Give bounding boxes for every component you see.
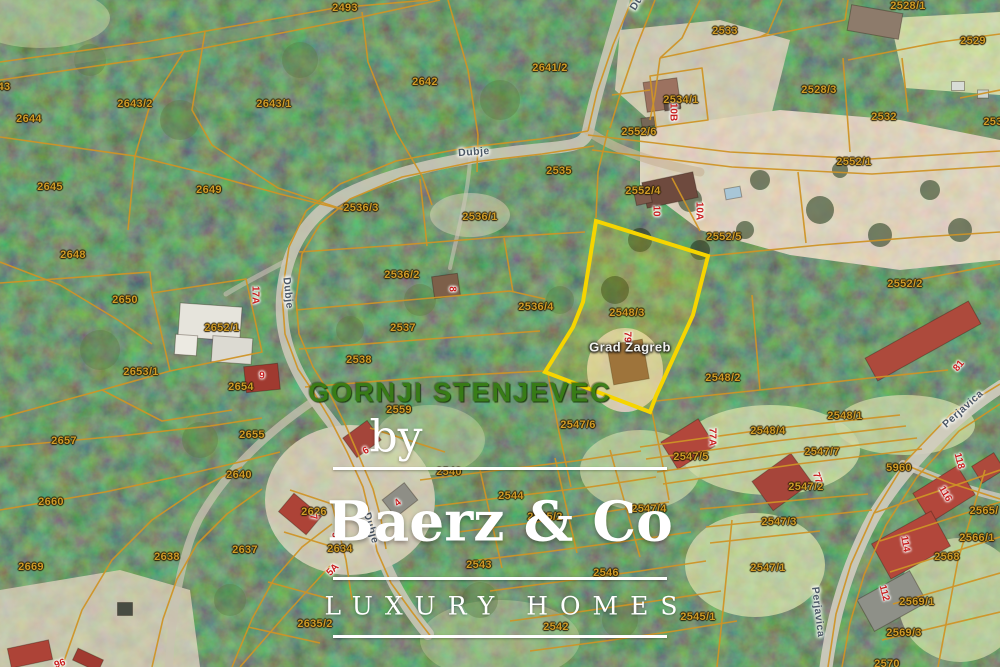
parcel-label: 2626 <box>301 506 327 518</box>
parcel-label: 2650 <box>112 294 138 306</box>
house-number-label: 118 <box>952 452 967 470</box>
parcel-label: 2545/2 <box>527 511 562 523</box>
parcel-label: 2637 <box>232 544 258 556</box>
parcel-label: 2537 <box>390 322 416 334</box>
parcel-label: 2654 <box>228 381 254 393</box>
parcel-label: 2643/2 <box>117 98 152 110</box>
house-number-label: 7 <box>307 513 319 520</box>
street-name-label: Dubje <box>628 0 655 13</box>
parcel-label: 2528/1 <box>890 0 925 12</box>
parcel-label: 2547/4 <box>631 503 666 515</box>
parcel-label: 2547/5 <box>673 451 708 463</box>
parcel-label: 2640 <box>226 469 252 481</box>
house-number-label: 10A <box>694 202 705 220</box>
parcel-label: 2552/2 <box>887 278 922 290</box>
parcel-label: 253 <box>983 116 1000 128</box>
parcel-label: 2660 <box>38 496 64 508</box>
house-number-label: 5 <box>329 532 340 539</box>
parcel-label: 2540 <box>436 466 462 478</box>
parcel-label: 2547/6 <box>560 419 595 431</box>
parcel-label: 2545/1 <box>680 611 715 623</box>
parcel-label: 2543 <box>466 559 492 571</box>
parcel-label: 2644 <box>16 113 42 125</box>
house-number-label: 114 <box>898 535 912 553</box>
house-number-label: 6 <box>361 445 371 457</box>
house-number-label: 10 <box>651 205 662 216</box>
parcel-label: 2566/1 <box>959 532 994 544</box>
parcel-label: 2493 <box>332 2 358 14</box>
parcel-label: 2649 <box>196 184 222 196</box>
house-number-label: 77A <box>707 428 718 446</box>
parcel-label: 2643/1 <box>256 98 291 110</box>
parcel-label: 2568 <box>934 551 960 563</box>
parcel-label: 2657 <box>51 435 77 447</box>
house-number-label: 77 <box>810 471 824 485</box>
parcel-label: 2652/1 <box>204 322 239 334</box>
parcel-label: 2548/1 <box>827 410 862 422</box>
house-number-label: 4 <box>392 497 403 509</box>
house-number-label: 79 <box>622 331 633 342</box>
parcel-label: 2548/4 <box>750 425 785 437</box>
parcel-label: 2552/6 <box>621 126 656 138</box>
parcel-label: 2569/3 <box>886 627 921 639</box>
parcel-label: 43 <box>0 81 10 93</box>
parcel-label: 2536/4 <box>518 301 553 313</box>
parcel-label: 2570 <box>874 658 900 667</box>
street-name-label: Dubje <box>458 145 490 159</box>
parcel-label: 2547/2 <box>788 481 823 493</box>
parcel-label: 2544 <box>498 490 524 502</box>
parcel-label: 2565/ <box>969 505 998 517</box>
parcel-label: 2536/3 <box>343 202 378 214</box>
parcel-label: 2569/1 <box>899 596 934 608</box>
parcel-label: 2641/2 <box>532 62 567 74</box>
parcel-label: 2548/3 <box>609 307 644 319</box>
parcel-label: 2542 <box>543 621 569 633</box>
parcel-label: 2638 <box>154 551 180 563</box>
parcel-label: 2533 <box>712 25 738 37</box>
parcel-label: 2635/2 <box>297 618 332 630</box>
parcel-label: 2552/4 <box>625 185 660 197</box>
parcel-label: 2655 <box>239 429 265 441</box>
parcel-label: 2547/3 <box>761 516 796 528</box>
house-number-label: 112 <box>877 584 892 602</box>
parcel-label: 2538 <box>346 354 372 366</box>
parcel-label: 2552/5 <box>706 231 741 243</box>
map-labels-layer: 2493432643/22643/1264426422641/225332528… <box>0 0 1000 667</box>
parcel-label: 2634 <box>327 543 353 555</box>
house-number-label: 17A <box>250 286 261 304</box>
map-canvas[interactable]: 2493432643/22643/1264426422641/225332528… <box>0 0 1000 667</box>
street-name-label: Dubje <box>361 511 381 545</box>
parcel-label: 2669 <box>18 561 44 573</box>
parcel-label: 2552/1 <box>836 156 871 168</box>
parcel-label: 2642 <box>412 76 438 88</box>
parcel-label: 2547/1 <box>750 562 785 574</box>
parcel-label: 2548/2 <box>705 372 740 384</box>
street-name-label: Dubje <box>280 277 295 310</box>
parcel-label: 2547/7 <box>804 446 839 458</box>
parcel-label: 2532 <box>871 111 897 123</box>
house-number-label: 116 <box>936 484 954 503</box>
house-number-label: 81 <box>951 358 967 374</box>
street-name-label: Perjavica <box>809 586 827 638</box>
district-label: GORNJI STENJEVEC <box>308 378 612 409</box>
parcel-label: 2534/1 <box>663 94 698 106</box>
parcel-label: 2536/2 <box>384 269 419 281</box>
owner-label: Grad Zagreb <box>589 340 671 355</box>
parcel-label: 2546 <box>593 567 619 579</box>
parcel-label: 2528/3 <box>801 84 836 96</box>
house-number-label: 8 <box>447 286 458 292</box>
house-number-label: 96 <box>53 657 67 667</box>
parcel-label: 2645 <box>37 181 63 193</box>
parcel-label: 2535 <box>546 165 572 177</box>
parcel-label: 2648 <box>60 249 86 261</box>
house-number-label: 9 <box>259 371 265 382</box>
street-name-label: Perjavica <box>940 388 986 431</box>
house-number-label: 10B <box>668 103 679 121</box>
parcel-label: 2536/1 <box>462 211 497 223</box>
parcel-label: 2529 <box>960 35 986 47</box>
house-number-label: 5A <box>325 562 342 579</box>
parcel-label: 2653/1 <box>123 366 158 378</box>
parcel-label: 5960 <box>886 462 912 474</box>
